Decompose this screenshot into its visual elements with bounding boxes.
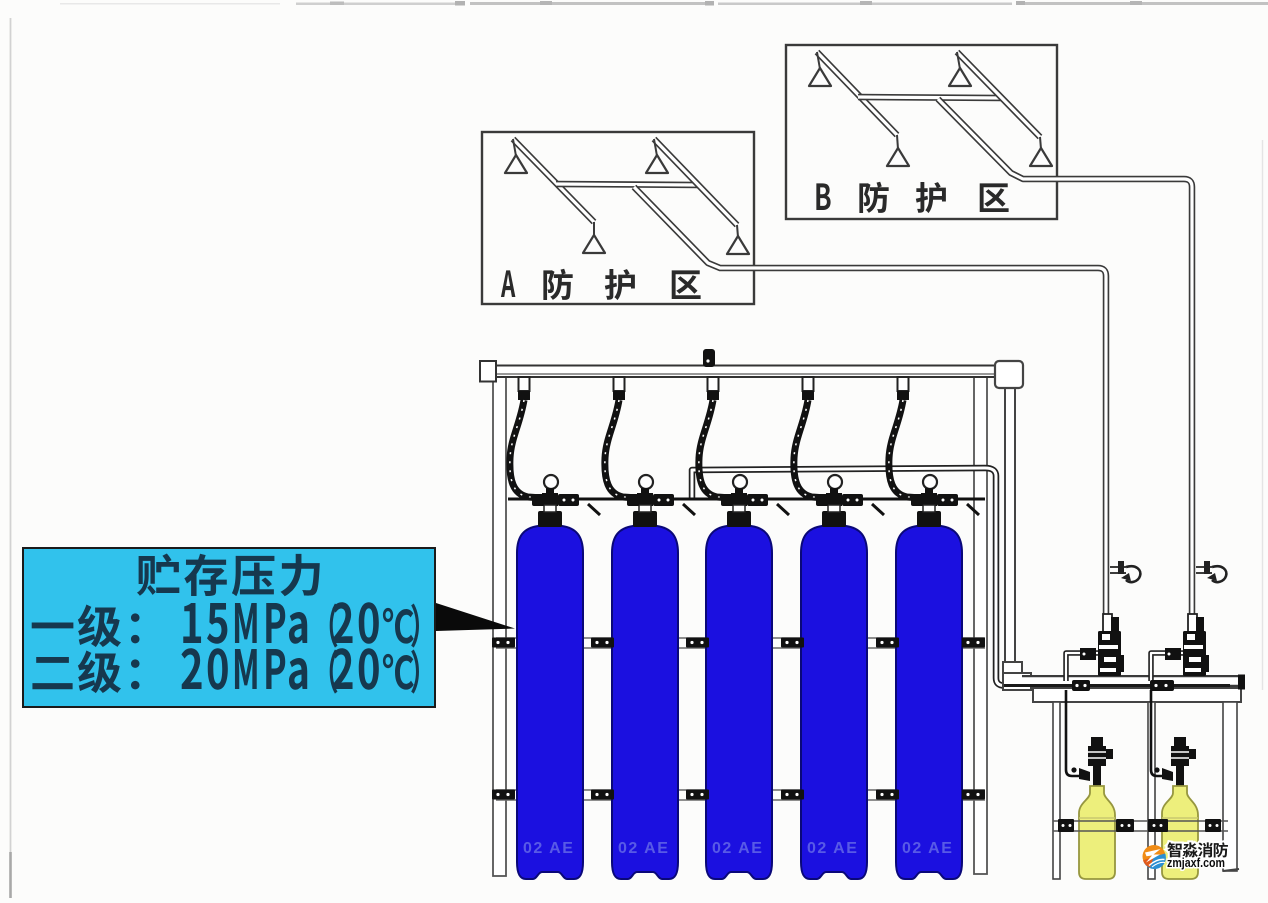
svg-text:02 AE: 02 AE bbox=[807, 840, 858, 857]
svg-text:02 AE: 02 AE bbox=[523, 840, 574, 857]
svg-text:02 AE: 02 AE bbox=[712, 840, 763, 857]
svg-text:zmjaxf.com: zmjaxf.com bbox=[1167, 856, 1225, 870]
svg-text:02 AE: 02 AE bbox=[618, 840, 669, 857]
svg-text:02 AE: 02 AE bbox=[902, 840, 953, 857]
